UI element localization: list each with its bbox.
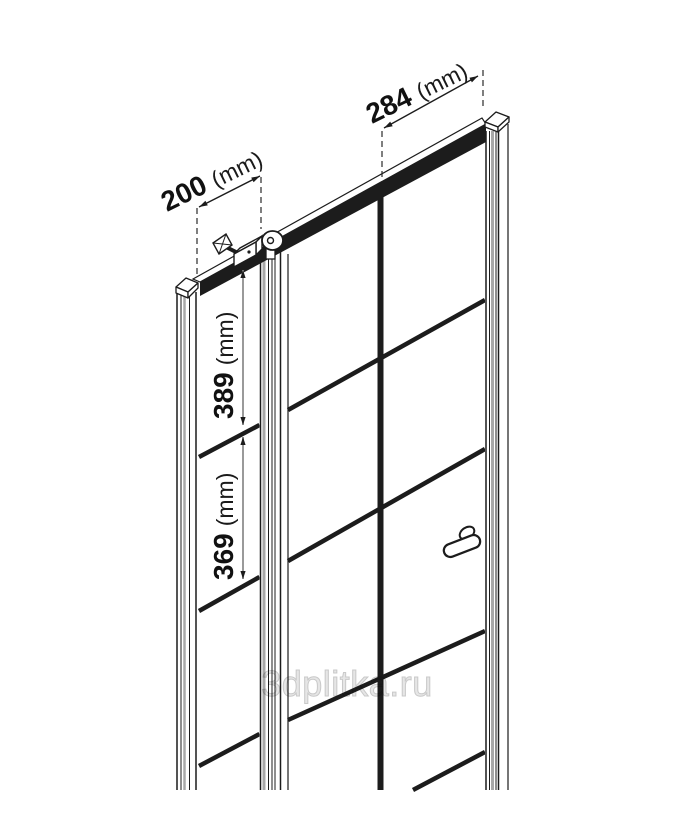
dimension-unit: (mm) — [207, 146, 267, 193]
dimension-lower-section-height: 369(mm) — [208, 437, 246, 580]
shower-enclosure-dimension-diagram: 200(mm) 284(mm) 389(mm) 369(mm) 3dplitka… — [0, 0, 693, 817]
dimension-value: 369 — [208, 533, 239, 580]
dimension-door-width: 284(mm) — [361, 54, 478, 129]
arrowhead — [251, 176, 260, 182]
dimension-unit: (mm) — [212, 312, 238, 366]
grid-mullions — [199, 300, 485, 790]
dimension-upper-section-height: 389(mm) — [208, 270, 246, 425]
left-wall-profile — [176, 292, 197, 790]
watermark: 3dplitka.ru — [261, 663, 433, 704]
dimensions: 200(mm) 284(mm) 389(mm) 369(mm) — [156, 54, 483, 580]
dimension-label: 200(mm) — [156, 142, 267, 217]
dimension-unit: (mm) — [412, 58, 472, 105]
door-handle — [442, 524, 482, 559]
dimension-value: 284 — [361, 81, 417, 130]
dimension-label: 284(mm) — [361, 54, 472, 129]
arrowhead — [240, 571, 245, 579]
grid-mullion — [199, 425, 260, 457]
top-rail — [193, 118, 486, 296]
dimension-unit: (mm) — [212, 473, 238, 527]
left-profile-body — [176, 292, 197, 790]
grid-mullion — [199, 577, 260, 611]
grid-mullion — [413, 752, 485, 790]
dimension-value: 200 — [156, 169, 212, 217]
dimension-label: 369(mm) — [208, 473, 239, 580]
pivot-axis-hole — [268, 238, 274, 244]
right-wall-profile — [485, 124, 509, 790]
technical-drawing: 200(mm) 284(mm) 389(mm) 369(mm) 3dplitka… — [0, 0, 693, 817]
right-profile-body — [485, 126, 509, 790]
dimension-side-panel-width: 200(mm) — [156, 142, 267, 217]
bracket-screw — [247, 250, 250, 253]
dimension-value: 389 — [208, 372, 239, 419]
arrowhead — [240, 417, 245, 425]
grid-mullion — [288, 300, 485, 410]
hinge-profile — [260, 248, 282, 790]
dimension-label: 389(mm) — [208, 312, 239, 419]
grid-mullion — [199, 734, 260, 766]
arrowhead — [240, 437, 245, 445]
